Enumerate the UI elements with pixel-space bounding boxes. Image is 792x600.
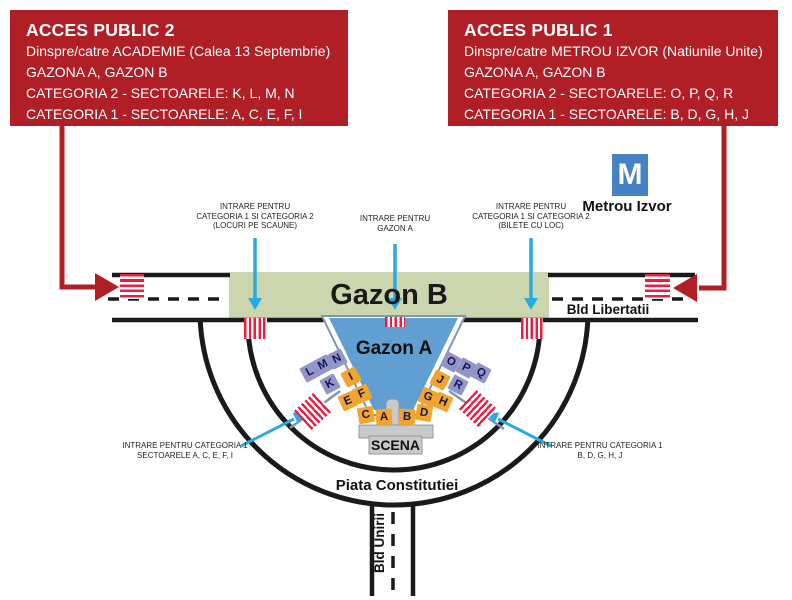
entrance-label-line: INTRARE PENTRU CATEGORIA 1 <box>105 441 265 451</box>
entrance-hatch-road-right <box>645 274 670 299</box>
sector-tile-I: I <box>340 366 362 388</box>
access-public-1-line: GAZONA A, GAZON B <box>464 62 778 83</box>
gazon-b-label: Gazon B <box>289 279 489 312</box>
entrance-hatch-category1-left <box>294 392 332 430</box>
gazon-a-label: Gazon A <box>334 338 454 360</box>
entrance-label-line: INTRARE PENTRU <box>185 202 325 212</box>
venue-access-map: ACCES PUBLIC 2 Dinspre/catre ACADEMIE (C… <box>0 0 792 600</box>
entrance-hatch-road-left <box>120 274 144 299</box>
access-public-1-line: Dinspre/catre METROU IZVOR (Natiunile Un… <box>464 41 778 62</box>
entrance-label-category1-left: INTRARE PENTRU CATEGORIA 1 SECTOARELE A,… <box>105 441 265 460</box>
access-public-1-line: CATEGORIA 1 - SECTOARELE: B, D, G, H, J <box>464 104 778 125</box>
entrance-label-line: SECTOARELE A, C, E, F, I <box>105 451 265 461</box>
access-public-2-line: Dinspre/catre ACADEMIE (Calea 13 Septemb… <box>26 41 348 62</box>
entrance-hatch-seated-right <box>521 318 543 339</box>
entrance-label-line: (LOCURI PE SCAUNE) <box>185 221 325 231</box>
entrance-label-line: INTRARE PENTRU CATEGORIA 1 <box>520 441 680 451</box>
sector-tile-K: K <box>319 373 341 395</box>
sector-tile-A: A <box>376 409 393 426</box>
entrance-label-line: B, D, G, H, J <box>520 451 680 461</box>
access-public-2-title: ACCES PUBLIC 2 <box>26 19 348 41</box>
metro-icon: M <box>612 154 648 196</box>
access-public-2-box: ACCES PUBLIC 2 Dinspre/catre ACADEMIE (C… <box>10 10 348 126</box>
entrance-label-line: CATEGORIA 1 SI CATEGORIA 2 <box>185 212 325 222</box>
access-public-2-line: CATEGORIA 1 - SECTOARELE: A, C, E, F, I <box>26 104 348 125</box>
entrance-label-seated-left: INTRARE PENTRU CATEGORIA 1 SI CATEGORIA … <box>185 202 325 231</box>
access-public-1-title: ACCES PUBLIC 1 <box>464 19 778 41</box>
boulevard-libertatii-label: Bld Libertatii <box>548 302 668 317</box>
entrance-label-category1-right: INTRARE PENTRU CATEGORIA 1 B, D, G, H, J <box>520 441 680 460</box>
access-public-2-line: GAZONA A, GAZON B <box>26 62 348 83</box>
entrance-hatch-seated-left <box>244 318 267 339</box>
roundabout-label: Piata Constitutiei <box>317 477 477 494</box>
access-public-1-line: CATEGORIA 2 - SECTOARELE: O, P, Q, R <box>464 83 778 104</box>
entrance-hatch-category1-right <box>459 390 497 428</box>
stage-label: SCENA <box>369 437 422 453</box>
access-route-left-arrow <box>62 125 119 301</box>
entrance-label-line: GAZON A <box>345 224 445 234</box>
access-public-2-line: CATEGORIA 2 - SECTOARELE: K, L, M, N <box>26 83 348 104</box>
entrance-label-seated-right: INTRARE PENTRU CATEGORIA 1 SI CATEGORIA … <box>461 202 601 231</box>
sector-tile-C: C <box>357 406 376 425</box>
entrance-label-line: (BILETE CU LOC) <box>461 221 601 231</box>
boulevard-unirii-label: Bld Unirii <box>372 508 390 578</box>
entrance-label-gazon-a: INTRARE PENTRU GAZON A <box>345 214 445 233</box>
entrance-label-line: CATEGORIA 1 SI CATEGORIA 2 <box>461 212 601 222</box>
entrance-label-line: INTRARE PENTRU <box>461 202 601 212</box>
entrance-hatch-gazon-a <box>385 317 405 327</box>
sector-tile-B: B <box>399 409 416 426</box>
entrance-label-line: INTRARE PENTRU <box>345 214 445 224</box>
access-public-1-box: ACCES PUBLIC 1 Dinspre/catre METROU IZVO… <box>448 10 778 126</box>
